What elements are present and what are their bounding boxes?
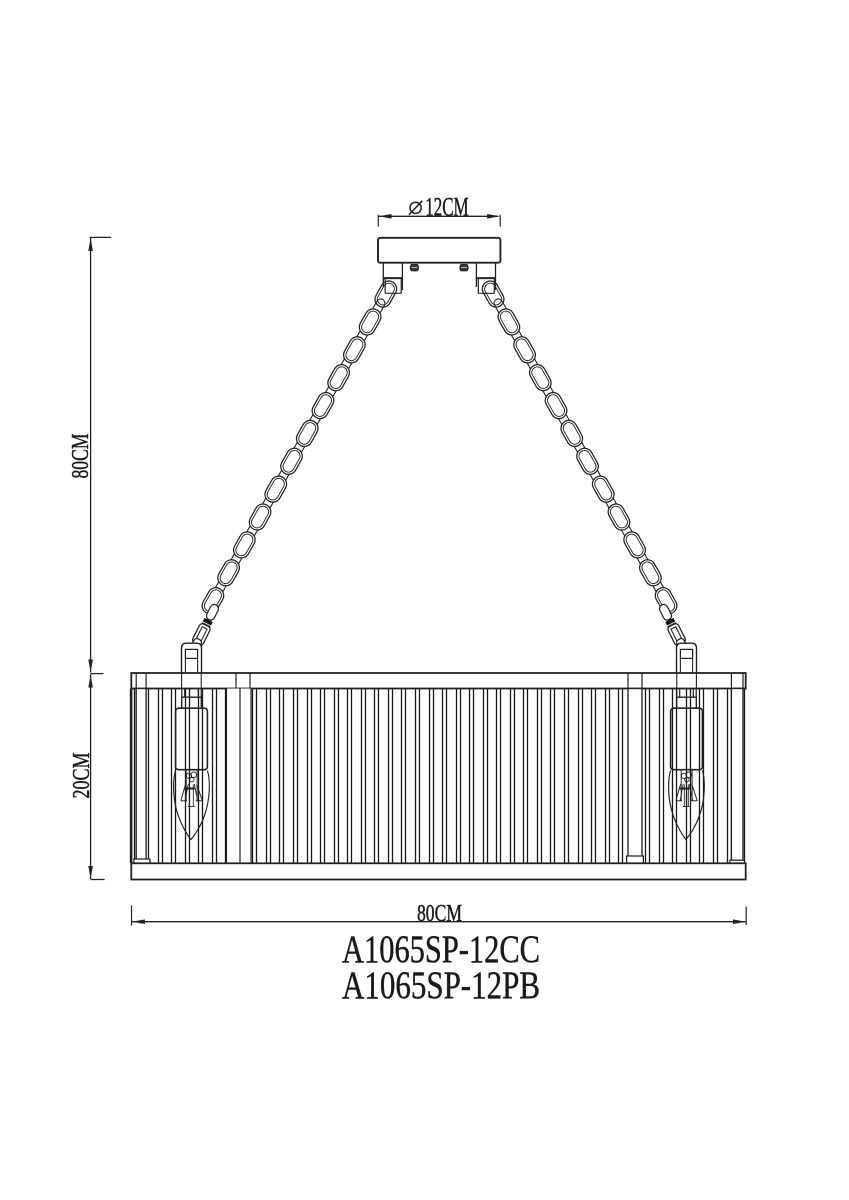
- svg-text:A1065SP-12PB: A1065SP-12PB: [342, 964, 540, 1007]
- svg-text:80CM: 80CM: [417, 901, 462, 927]
- svg-text:80CM: 80CM: [68, 434, 94, 479]
- svg-text:12CM: 12CM: [425, 193, 469, 222]
- svg-text:20CM: 20CM: [69, 753, 95, 799]
